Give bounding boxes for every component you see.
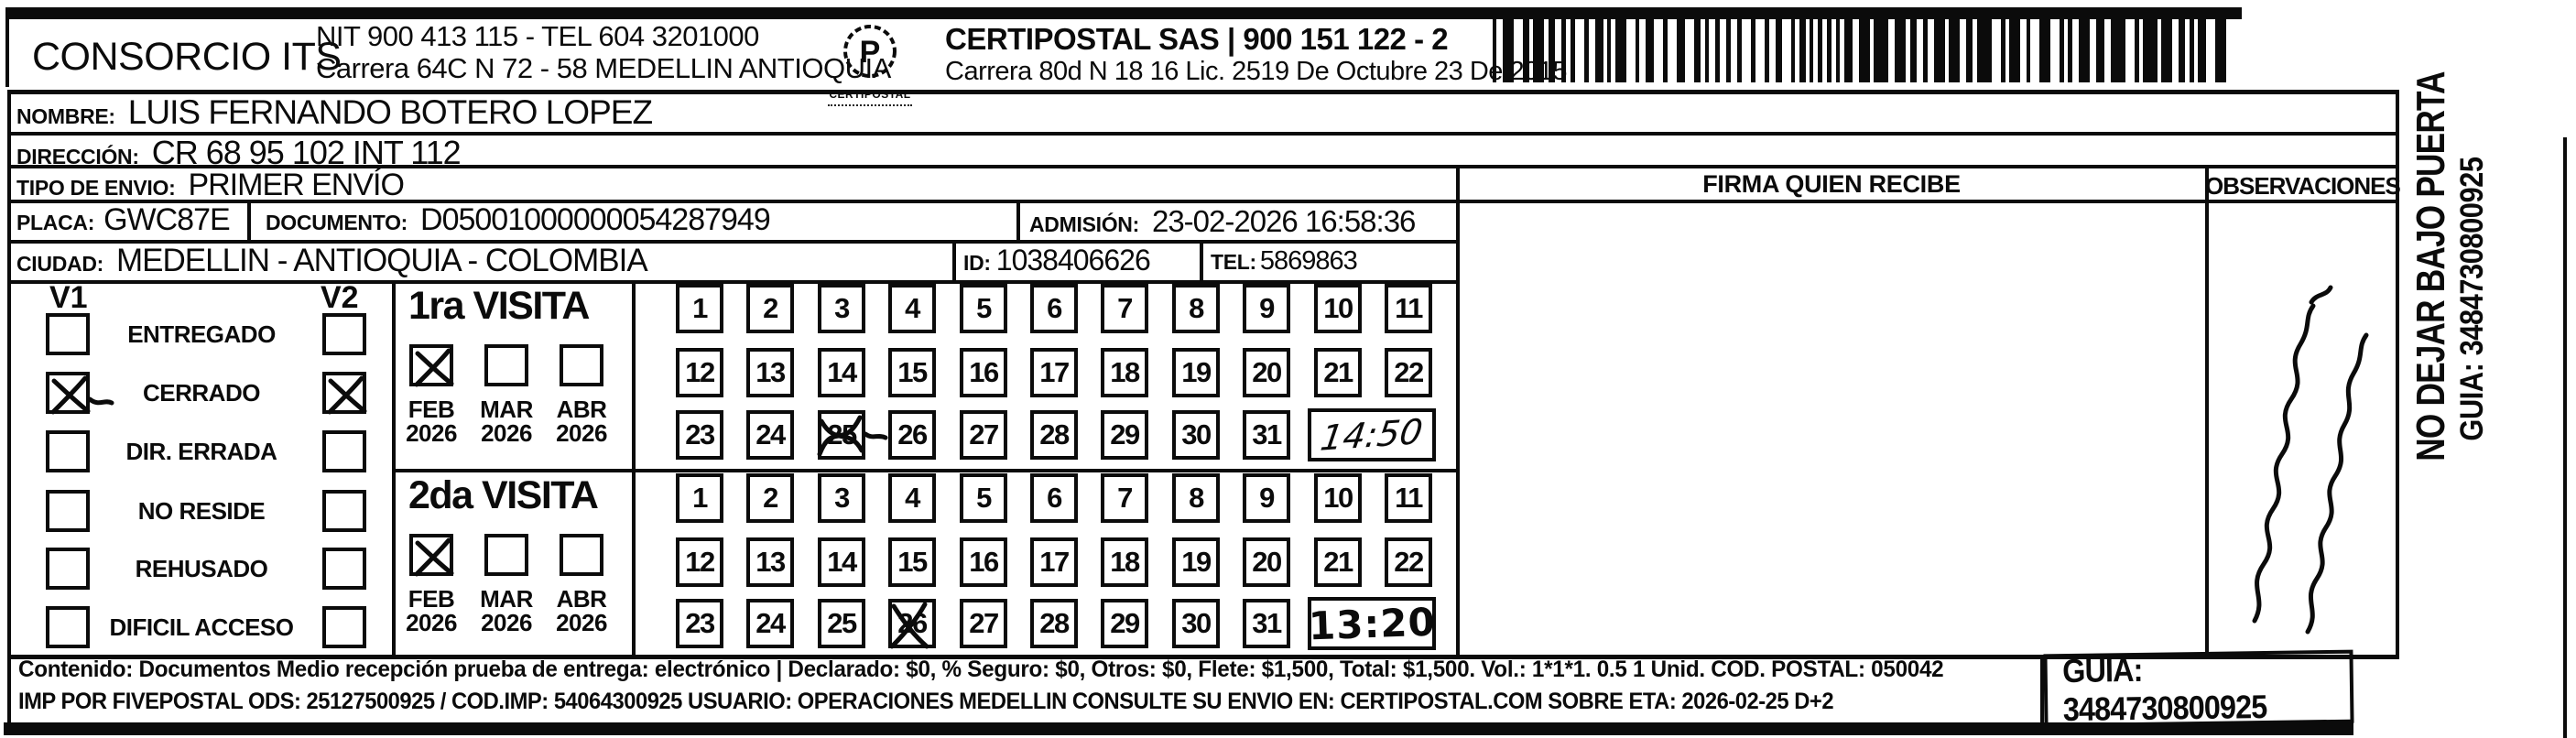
calendar-day-cell: 24 [746, 599, 794, 648]
calendar-day-cell: 9 [1243, 284, 1290, 333]
nombre-label: NOMBRE: [16, 104, 115, 129]
border-line [2563, 137, 2567, 738]
tipo-envio-label: TIPO DE ENVIO: [16, 176, 175, 201]
border-line [2040, 655, 2044, 723]
calendar-day-cell: 29 [1101, 599, 1148, 648]
placa-value: GWC87E [103, 202, 230, 238]
border-line [4, 722, 2353, 735]
v1-checkbox-cerrado [46, 372, 90, 414]
calendar-day-cell: 11 [1385, 284, 1432, 333]
time-cell-handwritten: 14:50 [1308, 408, 1436, 461]
calendar-day-cell: 13 [746, 537, 794, 587]
scanned-delivery-slip: CONSORCIO ITS NIT 900 413 115 - TEL 604 … [0, 0, 2576, 738]
v1-checkbox-entregado [46, 313, 90, 355]
border-line [1456, 165, 1460, 655]
v2-checkbox-cerrado [322, 372, 366, 414]
calendar-day-cell: 7 [1101, 284, 1148, 333]
status-label-entregado: ENTREGADO [96, 320, 307, 349]
calendar-day-cell: 8 [1172, 284, 1220, 333]
status-label-rehusado: REHUSADO [96, 555, 307, 583]
admision-value: 23-02-2026 16:58:36 [1152, 204, 1415, 239]
visit-2-title: 2da VISITA [408, 473, 597, 518]
v1-checkbox-dificil-acceso [46, 606, 90, 648]
documento-label: DOCUMENTO: [266, 211, 408, 235]
border-line [7, 280, 1456, 284]
calendar-day-cell: 7 [1101, 473, 1148, 523]
visit-1-month-checkbox-mar [484, 344, 528, 386]
border-line [2396, 90, 2399, 655]
calendar-day-cell: 6 [1030, 473, 1078, 523]
visit-1-month-checkbox-feb [409, 344, 453, 386]
calendar-day-cell: 27 [960, 599, 1007, 648]
border-line [7, 240, 1456, 244]
calendar-day-cell: 26 [888, 599, 936, 648]
calendar-day-cell: 22 [1385, 537, 1432, 587]
certipostal-name-line: CERTIPOSTAL SAS | 900 151 122 - 2 [945, 22, 1448, 57]
id-cell: ID: 1038406626 [963, 244, 1150, 277]
v2-checkbox-rehusado [322, 548, 366, 590]
month-year-label: 2026 [389, 609, 473, 637]
calendar-day-cell: 6 [1030, 284, 1078, 333]
calendar-day-cell: 1 [676, 284, 723, 333]
calendar-day-cell: 19 [1172, 537, 1220, 587]
calendar-day-cell: 3 [818, 284, 865, 333]
calendar-day-cell: 3 [818, 473, 865, 523]
status-label-no-reside: NO RESIDE [96, 497, 307, 526]
calendar-day-cell: 4 [888, 473, 936, 523]
nombre-row: NOMBRE: LUIS FERNANDO BOTERO LOPEZ [16, 93, 652, 132]
calendar-day-cell: 17 [1030, 537, 1078, 587]
status-label-dificil-acceso: DIFICIL ACCESO [96, 613, 307, 642]
ciudad-cell: CIUDAD: MEDELLIN - ANTIOQUIA - COLOMBIA [16, 243, 647, 279]
handwritten-x-mark [408, 532, 461, 588]
calendar-day-cell: 14 [818, 537, 865, 587]
calendar-day-cell: 18 [1101, 348, 1148, 397]
border-line [5, 7, 9, 87]
calendar-day-cell: 26 [888, 410, 936, 460]
side-guia-label: GUIA: 3484730800925 [2454, 121, 2491, 478]
v2-checkbox-dir-errada [322, 430, 366, 472]
guia-number: GUIA: 3484730800925 [2062, 648, 2335, 729]
status-label-dir-errada: DIR. ERRADA [96, 438, 307, 466]
month-year-label: 2026 [464, 609, 549, 637]
v2-checkbox-dificil-acceso [322, 606, 366, 648]
company-name: CONSORCIO ITS [32, 35, 342, 80]
tipo-envio-row: TIPO DE ENVIO: PRIMER ENVÍO [16, 168, 404, 203]
footer-imprint-line: IMP POR FIVEPOSTAL ODS: 25127500925 / CO… [18, 689, 1833, 715]
calendar-day-cell: 9 [1243, 473, 1290, 523]
calendar-day-cell: 13 [746, 348, 794, 397]
handwritten-time: 14:50 [1318, 411, 1425, 459]
placa-cell: PLACA: GWC87E [16, 202, 230, 238]
firma-header: FIRMA QUIEN RECIBE [1456, 170, 2207, 199]
calendar-day-cell: 2 [746, 284, 794, 333]
id-value: 1038406626 [996, 244, 1150, 277]
handwritten-note [2220, 218, 2394, 653]
calendar-day-cell: 15 [888, 537, 936, 587]
calendar-day-cell: 10 [1314, 284, 1362, 333]
calendar-day-cell: 27 [960, 410, 1007, 460]
month-year-label: 2026 [464, 419, 549, 448]
border-line [7, 90, 2399, 94]
calendar-day-cell: 28 [1030, 599, 1078, 648]
calendar-day-cell: 30 [1172, 599, 1220, 648]
observaciones-header: OBSERVACIONES [2205, 172, 2397, 201]
calendar-day-cell: 30 [1172, 410, 1220, 460]
company-nit-line: NIT 900 413 115 - TEL 604 3201000 [316, 20, 759, 53]
admision-cell: ADMISIÓN: 23-02-2026 16:58:36 [1029, 204, 1415, 239]
calendar-day-cell: 8 [1172, 473, 1220, 523]
border-line [247, 200, 251, 240]
calendar-day-cell: 21 [1314, 537, 1362, 587]
calendar-day-cell: 10 [1314, 473, 1362, 523]
calendar-day-cell: 17 [1030, 348, 1078, 397]
v1-checkbox-no-reside [46, 490, 90, 532]
border-line [394, 469, 1456, 472]
v2-checkbox-no-reside [322, 490, 366, 532]
visit-2-month-checkbox-abr [560, 534, 603, 576]
guia-box: GUIA: 3484730800925 [2043, 650, 2353, 728]
calendar-day-cell: 12 [676, 537, 723, 587]
svg-text:P: P [860, 35, 881, 70]
side-label: NO DEJAR BAJO PUERTA GUIA: 3484730800925 [2408, 96, 2511, 502]
documento-value: D05001000000054287949 [420, 202, 770, 238]
v1-column-header: V1 [49, 280, 88, 316]
border-line [632, 280, 636, 655]
calendar-day-cell: 20 [1243, 537, 1290, 587]
calendar-day-cell: 5 [960, 473, 1007, 523]
calendar-day-cell: 21 [1314, 348, 1362, 397]
visit-2-month-checkbox-mar [484, 534, 528, 576]
admision-label: ADMISIÓN: [1029, 212, 1139, 237]
calendar-day-cell: 23 [676, 599, 723, 648]
no-dejar-bajo-puerta-label: NO DEJAR BAJO PUERTA [2408, 136, 2454, 461]
month-year-label: 2026 [539, 609, 624, 637]
footer-content-line: Contenido: Documentos Medio recepción pr… [18, 657, 1943, 683]
time-cell-handwritten: 13:20 [1308, 597, 1436, 650]
month-year-label: 2026 [539, 419, 624, 448]
visit-2-month-checkbox-feb [409, 534, 453, 576]
id-label: ID: [963, 251, 991, 276]
documento-cell: DOCUMENTO: D05001000000054287949 [266, 202, 770, 238]
ciudad-value: MEDELLIN - ANTIOQUIA - COLOMBIA [116, 243, 647, 279]
border-line [1200, 240, 1203, 280]
calendar-day-cell: 28 [1030, 410, 1078, 460]
border-line [7, 90, 11, 725]
placa-label: PLACA: [16, 211, 94, 235]
status-label-cerrado: CERRADO [96, 379, 307, 407]
calendar-day-cell: 14 [818, 348, 865, 397]
handwritten-x-mark [321, 370, 374, 426]
calendar-day-cell: 31 [1243, 599, 1290, 648]
border-line [7, 165, 2399, 168]
v2-checkbox-entregado [322, 313, 366, 355]
border-line [7, 132, 2399, 136]
tel-value: 5869863 [1260, 246, 1357, 277]
border-line [2205, 165, 2209, 655]
calendar-day-cell: 12 [676, 348, 723, 397]
border-line [5, 7, 2242, 19]
month-year-label: 2026 [389, 419, 473, 448]
calendar-day-cell: 4 [888, 284, 936, 333]
tel-cell: TEL: 5869863 [1211, 246, 1357, 277]
v2-column-header: V2 [321, 280, 359, 316]
calendar-day-cell: 19 [1172, 348, 1220, 397]
company-address-line: Carrera 64C N 72 - 58 MEDELLIN ANTIOQUIA [316, 52, 891, 85]
logo-microtext-line [828, 104, 912, 106]
handwritten-time: 13:20 [1308, 599, 1436, 648]
calendar-day-cell: 15 [888, 348, 936, 397]
calendar-day-cell: 1 [676, 473, 723, 523]
tel-label: TEL: [1211, 250, 1256, 275]
barcode [1493, 13, 2234, 87]
calendar-day-cell: 20 [1243, 348, 1290, 397]
calendar-day-cell: 23 [676, 410, 723, 460]
border-line [952, 240, 956, 280]
calendar-day-cell: 24 [746, 410, 794, 460]
calendar-day-cell: 25 [818, 599, 865, 648]
nombre-value: LUIS FERNANDO BOTERO LOPEZ [128, 93, 652, 132]
handwritten-x-mark [408, 342, 461, 398]
v1-checkbox-rehusado [46, 548, 90, 590]
calendar-day-cell: 5 [960, 284, 1007, 333]
calendar-day-cell: 2 [746, 473, 794, 523]
tipo-envio-value: PRIMER ENVÍO [188, 168, 403, 203]
calendar-day-cell: 11 [1385, 473, 1432, 523]
calendar-day-cell: 29 [1101, 410, 1148, 460]
calendar-day-cell: 25 [818, 410, 865, 460]
v1-checkbox-dir-errada [46, 430, 90, 472]
visit-1-title: 1ra VISITA [408, 284, 589, 329]
calendar-day-cell: 16 [960, 537, 1007, 587]
certipostal-logo-icon: P [831, 16, 908, 92]
calendar-day-cell: 18 [1101, 537, 1148, 587]
calendar-day-cell: 16 [960, 348, 1007, 397]
visit-1-month-checkbox-abr [560, 344, 603, 386]
certipostal-address-line: Carrera 80d N 18 16 Lic. 2519 De Octubre… [945, 57, 1567, 87]
border-line [7, 200, 2399, 203]
calendar-day-cell: 22 [1385, 348, 1432, 397]
ciudad-label: CIUDAD: [16, 252, 103, 277]
calendar-day-cell: 31 [1243, 410, 1290, 460]
border-line [1016, 200, 1020, 240]
